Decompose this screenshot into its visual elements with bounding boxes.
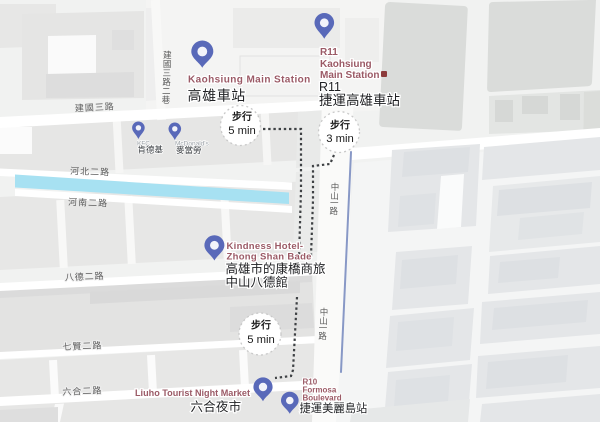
svg-text:河北二路: 河北二路 — [70, 165, 110, 177]
svg-text:中山八德館: 中山八德館 — [226, 275, 289, 290]
svg-text:Zhong Shan Bade: Zhong Shan Bade — [227, 252, 312, 263]
svg-text:麥當勞: 麥當勞 — [176, 145, 202, 155]
svg-text:Liuho Tourist Night Market: Liuho Tourist Night Market — [135, 388, 250, 398]
svg-text:建國三路: 建國三路 — [75, 100, 116, 113]
svg-text:河南二路: 河南二路 — [68, 196, 108, 208]
svg-text:R11: R11 — [320, 47, 338, 58]
svg-text:高雄車站: 高雄車站 — [188, 88, 246, 104]
svg-text:中山一路: 中山一路 — [318, 307, 328, 341]
svg-text:3 min: 3 min — [326, 133, 354, 145]
svg-text:肯德基: 肯德基 — [138, 145, 164, 155]
svg-text:步行: 步行 — [232, 110, 252, 123]
svg-text:步行: 步行 — [251, 319, 271, 332]
svg-text:捷運美麗島站: 捷運美麗島站 — [300, 401, 368, 415]
svg-text:R11: R11 — [319, 80, 341, 94]
svg-text:六合夜市: 六合夜市 — [191, 399, 242, 414]
svg-text:5 min: 5 min — [228, 125, 256, 137]
svg-text:Boulevard: Boulevard — [303, 394, 342, 403]
svg-text:中山一路: 中山一路 — [330, 182, 340, 216]
svg-text:Kaohsiung: Kaohsiung — [320, 59, 372, 70]
svg-text:六合二路: 六合二路 — [62, 384, 102, 397]
svg-text:七賢二路: 七賢二路 — [62, 339, 102, 352]
svg-text:八德二路: 八德二路 — [65, 270, 105, 283]
svg-text:5 min: 5 min — [247, 334, 275, 346]
svg-text:Kindness Hotel-: Kindness Hotel- — [227, 241, 304, 252]
svg-text:Kaohsiung Main Station: Kaohsiung Main Station — [188, 75, 311, 86]
svg-text:高雄市的康橋商旅: 高雄市的康橋商旅 — [226, 261, 326, 276]
svg-text:捷運高雄車站: 捷運高雄車站 — [319, 92, 400, 108]
svg-text:步行: 步行 — [330, 119, 350, 132]
